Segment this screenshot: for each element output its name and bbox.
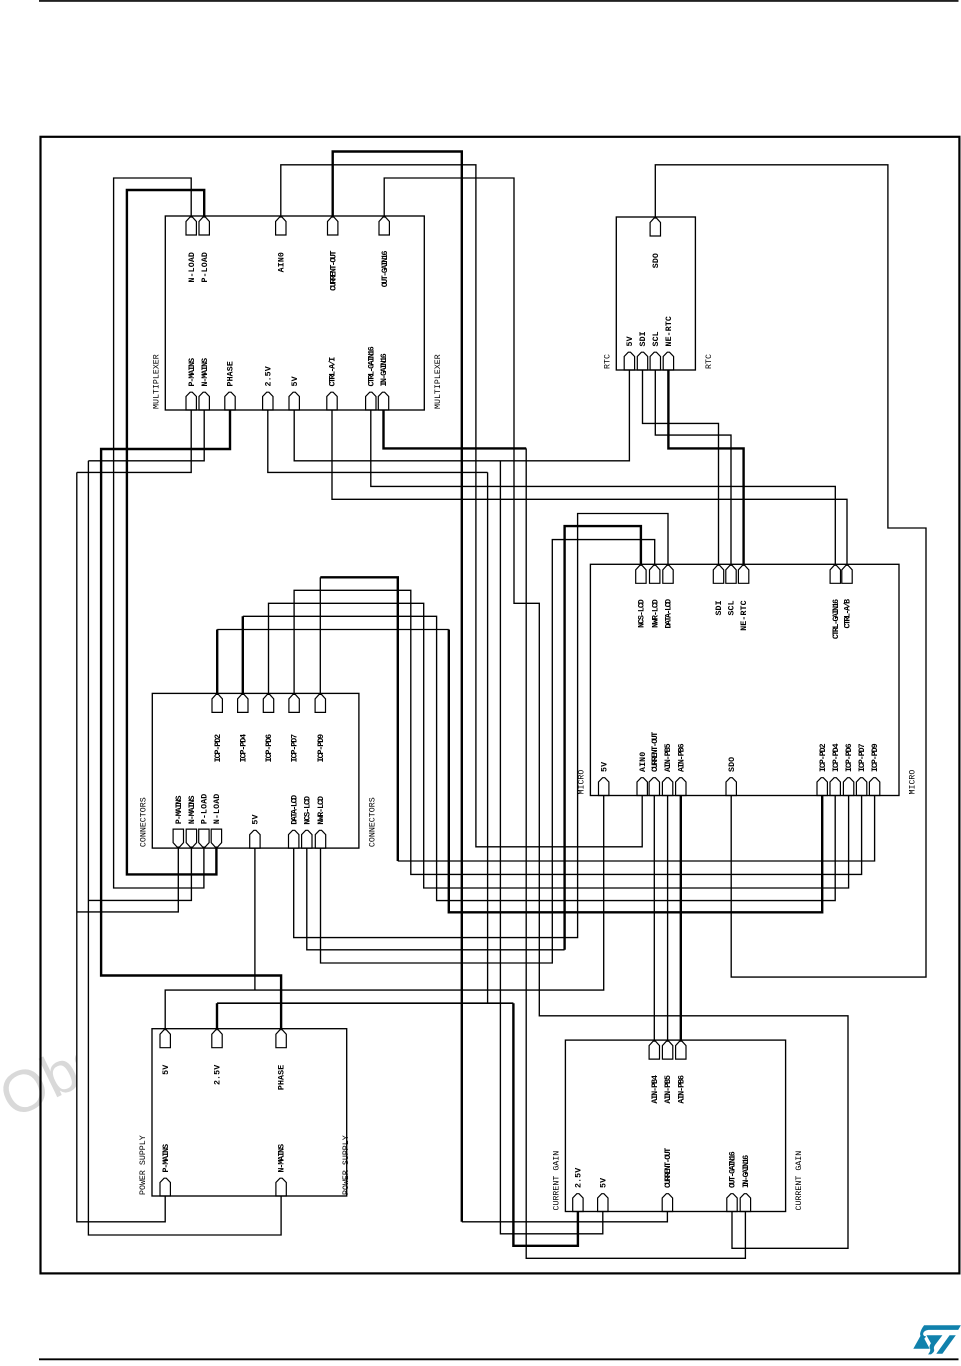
svg-text:MULTIPLEXER: MULTIPLEXER — [152, 354, 161, 409]
svg-text:5V: 5V — [599, 1178, 608, 1188]
svg-text:NE-RTC: NE-RTC — [740, 600, 749, 630]
svg-text:AIN0: AIN0 — [277, 252, 286, 272]
svg-text:NWR-LCD: NWR-LCD — [317, 796, 326, 825]
svg-text:2.5V: 2.5V — [575, 1168, 584, 1188]
svg-text:AIN0: AIN0 — [639, 752, 648, 772]
svg-text:RTC: RTC — [603, 354, 612, 369]
svg-text:N-MAINS: N-MAINS — [188, 796, 197, 825]
svg-text:IN-GAIN16: IN-GAIN16 — [380, 353, 389, 386]
svg-text:NE-RTC: NE-RTC — [665, 316, 674, 346]
svg-text:AIN-PB5: AIN-PB5 — [664, 743, 673, 772]
svg-text:5V: 5V — [626, 336, 635, 346]
svg-text:POWER SUPPLY: POWER SUPPLY — [139, 1135, 148, 1195]
svg-text:P-MAINS: P-MAINS — [188, 358, 197, 387]
svg-text:AIN-PB6: AIN-PB6 — [677, 1075, 686, 1104]
svg-text:5V: 5V — [600, 762, 609, 772]
svg-text:SDO: SDO — [652, 253, 661, 268]
svg-text:NCS-LCD: NCS-LCD — [638, 599, 647, 628]
svg-text:ICP-PD7: ICP-PD7 — [858, 743, 867, 772]
svg-text:CONNECTORS: CONNECTORS — [368, 797, 377, 847]
svg-text:NWR-LCD: NWR-LCD — [651, 599, 660, 628]
svg-text:SCL: SCL — [728, 600, 737, 615]
svg-text:ICP-PD4: ICP-PD4 — [239, 734, 248, 763]
svg-text:IN-GAIN16: IN-GAIN16 — [742, 1155, 751, 1188]
svg-text:N-LOAD: N-LOAD — [188, 252, 197, 282]
svg-text:DATA-LCD: DATA-LCD — [665, 599, 674, 629]
svg-text:N-MAINS: N-MAINS — [201, 358, 210, 387]
svg-text:5V: 5V — [252, 814, 261, 824]
svg-text:MICRO: MICRO — [577, 770, 586, 795]
svg-text:2.5V: 2.5V — [264, 366, 273, 386]
svg-text:P-MAINS: P-MAINS — [175, 796, 184, 825]
svg-text:DATA-LCD: DATA-LCD — [290, 795, 299, 825]
svg-text:P-MAINS: P-MAINS — [162, 1144, 171, 1173]
svg-text:AIN-PB5: AIN-PB5 — [664, 1075, 673, 1104]
svg-text:POWER SUPPLY: POWER SUPPLY — [342, 1135, 351, 1195]
svg-text:RTC: RTC — [705, 354, 714, 369]
svg-text:CURRENT GAIN: CURRENT GAIN — [795, 1151, 804, 1211]
svg-text:ICP-PD2: ICP-PD2 — [819, 743, 828, 772]
svg-text:CURRENT-OUT: CURRENT-OUT — [329, 251, 338, 291]
svg-text:ICP-PD6: ICP-PD6 — [265, 734, 274, 763]
svg-text:ICP-PD7: ICP-PD7 — [291, 734, 300, 763]
svg-text:SCL: SCL — [652, 331, 661, 346]
svg-text:AIN-PB6: AIN-PB6 — [677, 743, 686, 772]
svg-text:OUT-GAIN16: OUT-GAIN16 — [381, 251, 390, 288]
svg-text:CTRL-GAIN16: CTRL-GAIN16 — [367, 346, 376, 386]
svg-text:SDO: SDO — [728, 757, 737, 772]
svg-text:AIN-PB4: AIN-PB4 — [651, 1075, 660, 1104]
svg-text:NCS-LCD: NCS-LCD — [303, 796, 312, 825]
svg-text:ICP-PD9: ICP-PD9 — [871, 743, 880, 772]
svg-text:MICRO: MICRO — [909, 770, 918, 795]
svg-text:ICP-PD9: ICP-PD9 — [317, 734, 326, 763]
svg-text:ICP-PD4: ICP-PD4 — [832, 743, 841, 772]
svg-text:PHASE: PHASE — [278, 1065, 287, 1090]
svg-text:PHASE: PHASE — [227, 361, 236, 386]
svg-text:MULTIPLEXER: MULTIPLEXER — [434, 354, 443, 409]
svg-text:CTRL-A/B: CTRL-A/B — [843, 599, 853, 629]
svg-text:CTRL-GAIN16: CTRL-GAIN16 — [832, 599, 841, 639]
svg-text:CONNECTORS: CONNECTORS — [139, 797, 148, 847]
svg-text:OUT-GAIN16: OUT-GAIN16 — [729, 1151, 738, 1188]
svg-text:2.5V: 2.5V — [214, 1065, 223, 1085]
svg-text:N-LOAD: N-LOAD — [213, 794, 222, 824]
svg-text:5V: 5V — [162, 1065, 171, 1075]
svg-text:ICP-PD2: ICP-PD2 — [214, 734, 223, 763]
svg-text:CTRL-A/I: CTRL-A/I — [328, 357, 338, 387]
svg-text:SDI: SDI — [715, 600, 724, 615]
svg-text:ICP-PD6: ICP-PD6 — [845, 743, 854, 772]
svg-text:CURRENT-OUT: CURRENT-OUT — [651, 732, 660, 772]
svg-text:5V: 5V — [291, 376, 300, 386]
svg-text:SDI: SDI — [639, 331, 648, 346]
svg-text:N-MAINS: N-MAINS — [278, 1144, 287, 1173]
svg-text:CURRENT-OUT: CURRENT-OUT — [664, 1148, 673, 1188]
svg-text:P-LOAD: P-LOAD — [201, 252, 210, 282]
svg-text:CURRENT GAIN: CURRENT GAIN — [552, 1151, 561, 1211]
svg-text:P-LOAD: P-LOAD — [201, 794, 210, 824]
